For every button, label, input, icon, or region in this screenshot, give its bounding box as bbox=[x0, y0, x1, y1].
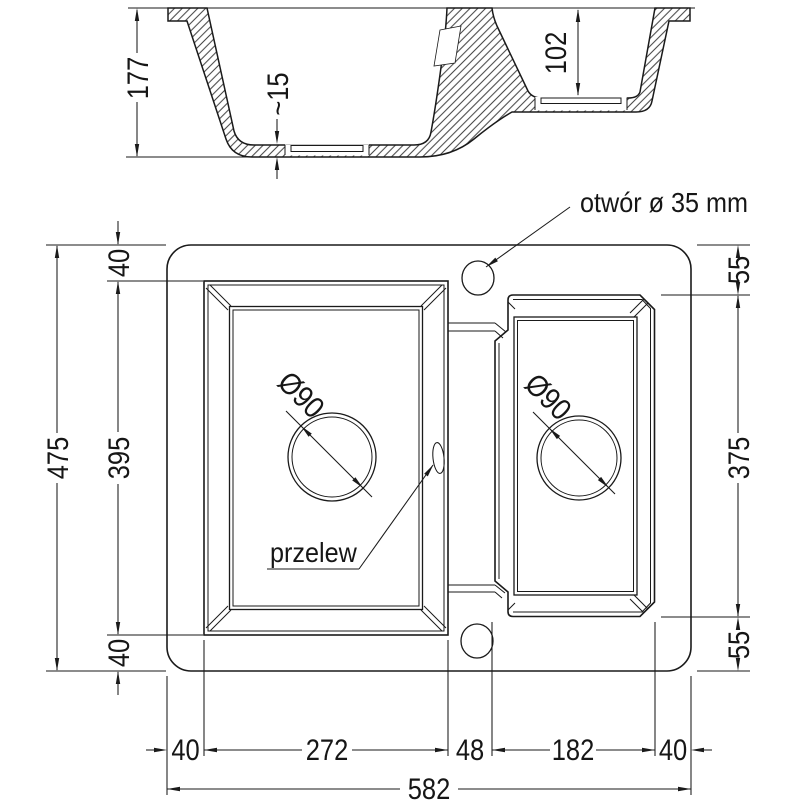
left-bowl-height-label: 395 bbox=[102, 437, 135, 480]
overflow-label: przelew bbox=[270, 537, 358, 569]
top-margin-label: 40 bbox=[102, 249, 135, 277]
plan-view: Ø90 Ø90 bbox=[167, 187, 748, 671]
divider-width-label: 48 bbox=[456, 733, 484, 766]
right-margin-label: 40 bbox=[659, 733, 687, 766]
dim-total-width: 582 bbox=[167, 772, 691, 800]
dim-recess-depth: ~15 bbox=[261, 72, 294, 179]
faucet-hole bbox=[462, 261, 494, 295]
bottom-margin-label: 40 bbox=[102, 639, 135, 667]
divider-ledge-lines bbox=[448, 323, 506, 598]
depth-small-label: 102 bbox=[539, 32, 572, 75]
dim-bottom-row: 40 272 48 182 40 bbox=[146, 733, 712, 766]
left-drain-label: Ø90 bbox=[271, 365, 331, 425]
recess-depth-label: ~15 bbox=[261, 72, 294, 115]
left-bowl-corner-chamfers bbox=[206, 285, 446, 631]
dim-right-column: 55 375 55 bbox=[722, 245, 755, 671]
right-bowl-corner-chamfers bbox=[508, 299, 648, 613]
overflow-slot bbox=[431, 442, 445, 474]
drawing-canvas: 177 ~15 102 bbox=[0, 0, 800, 800]
total-height-label: 475 bbox=[41, 437, 74, 480]
left-drain-recess bbox=[285, 145, 369, 156]
extension-lines bbox=[46, 245, 750, 795]
dim-left-column: 40 395 40 bbox=[102, 221, 135, 695]
section-view: 177 ~15 102 bbox=[121, 8, 695, 179]
overflow-callout: przelew bbox=[267, 465, 434, 570]
dim-total-height: 475 bbox=[41, 245, 74, 671]
faucet-hole-label: otwór ø 35 mm bbox=[580, 187, 748, 219]
left-bowl-width-label: 272 bbox=[306, 733, 349, 766]
sink-technical-drawing: 177 ~15 102 bbox=[0, 0, 800, 800]
right-bowl-width-label: 182 bbox=[552, 733, 595, 766]
faucet-hole-callout: otwór ø 35 mm bbox=[486, 187, 748, 267]
right-drain-recess bbox=[535, 97, 627, 111]
depth-main-label: 177 bbox=[121, 57, 154, 100]
right-drain-label: Ø90 bbox=[518, 367, 578, 427]
right-bowl-height-label: 375 bbox=[722, 437, 755, 480]
right-bottom-label: 55 bbox=[722, 631, 755, 659]
total-width-label: 582 bbox=[408, 772, 451, 800]
left-bowl: Ø90 bbox=[204, 281, 448, 635]
plan-dimensions: 475 40 395 40 55 375 55 bbox=[41, 221, 755, 800]
right-bowl: Ø90 bbox=[448, 295, 655, 617]
dim-depth-small: 102 bbox=[539, 9, 580, 96]
section-body-hatched bbox=[168, 8, 690, 157]
left-margin-label: 40 bbox=[171, 733, 199, 766]
bottom-hole bbox=[461, 624, 493, 658]
right-top-label: 55 bbox=[722, 256, 755, 284]
sink-outline bbox=[167, 245, 691, 671]
